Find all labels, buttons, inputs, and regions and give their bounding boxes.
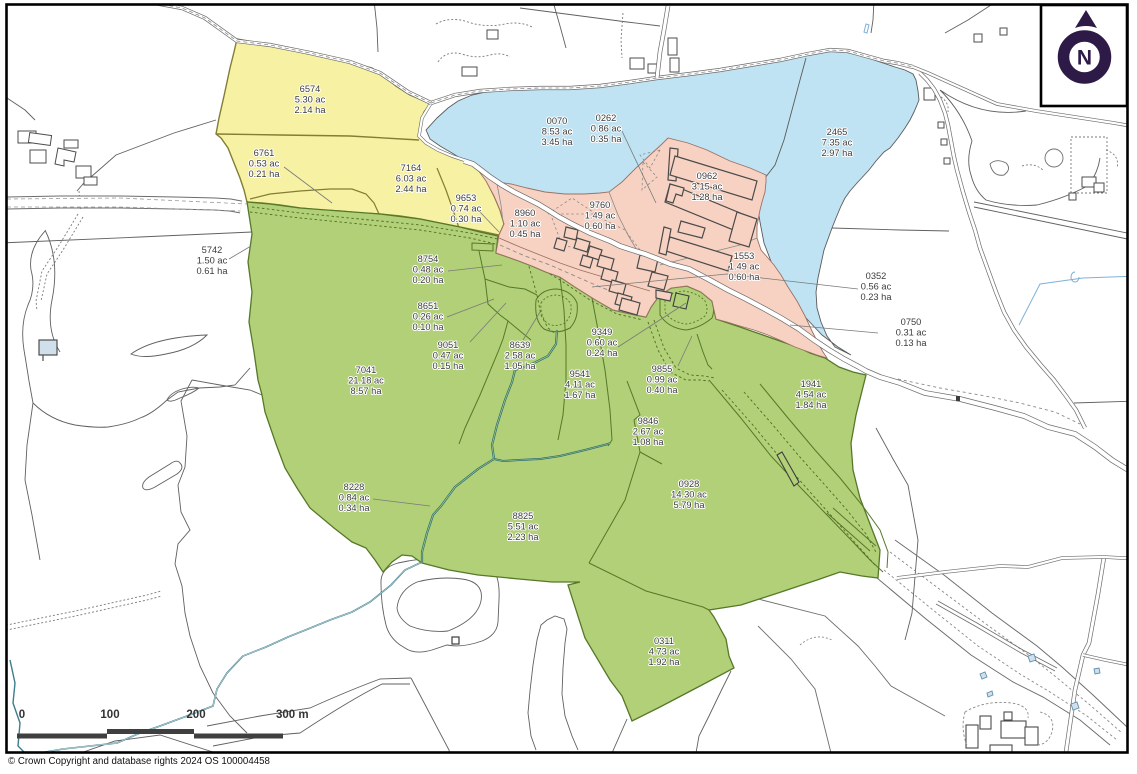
svg-text:0.60 ha: 0.60 ha xyxy=(584,221,616,231)
svg-text:0.84 ac: 0.84 ac xyxy=(339,493,370,503)
svg-text:4.54 ac: 4.54 ac xyxy=(796,390,827,400)
svg-text:4.73 ac: 4.73 ac xyxy=(649,647,680,657)
svg-text:6.03 ac: 6.03 ac xyxy=(396,174,427,184)
svg-text:0.24 ha: 0.24 ha xyxy=(586,348,618,358)
svg-text:8.57 ha: 8.57 ha xyxy=(350,386,382,396)
svg-text:1.92 ha: 1.92 ha xyxy=(648,657,680,667)
svg-text:9846: 9846 xyxy=(638,416,659,426)
svg-text:0928: 0928 xyxy=(679,479,700,489)
svg-text:2.14 ha: 2.14 ha xyxy=(294,105,326,115)
svg-text:0.23 ha: 0.23 ha xyxy=(860,292,892,302)
svg-text:2.97 ha: 2.97 ha xyxy=(821,148,853,158)
svg-text:2465: 2465 xyxy=(827,127,848,137)
svg-text:9349: 9349 xyxy=(592,327,613,337)
svg-text:9051: 9051 xyxy=(438,340,459,350)
svg-text:6574: 6574 xyxy=(300,84,321,94)
svg-text:2.58 ac: 2.58 ac xyxy=(505,351,536,361)
svg-text:200: 200 xyxy=(186,709,205,721)
svg-text:8960: 8960 xyxy=(515,208,536,218)
svg-text:5.30 ac: 5.30 ac xyxy=(295,95,326,105)
svg-text:2.23 ha: 2.23 ha xyxy=(507,532,539,542)
svg-text:0352: 0352 xyxy=(866,271,887,281)
svg-text:21.18 ac: 21.18 ac xyxy=(348,376,384,386)
svg-text:7164: 7164 xyxy=(401,163,422,173)
svg-text:0262: 0262 xyxy=(596,113,617,123)
svg-text:5.79 ha: 5.79 ha xyxy=(673,500,705,510)
svg-text:0.74 ac: 0.74 ac xyxy=(451,204,482,214)
svg-text:0.60 ac: 0.60 ac xyxy=(587,338,618,348)
svg-text:0.48 ac: 0.48 ac xyxy=(413,265,444,275)
svg-text:1.10 ac: 1.10 ac xyxy=(510,219,541,229)
svg-text:8228: 8228 xyxy=(344,482,365,492)
svg-text:0.53 ac: 0.53 ac xyxy=(249,159,280,169)
svg-text:0750: 0750 xyxy=(901,317,922,327)
svg-text:0.99 ac: 0.99 ac xyxy=(647,375,678,385)
svg-text:0.15 ha: 0.15 ha xyxy=(432,361,464,371)
svg-text:0.21 ha: 0.21 ha xyxy=(248,169,280,179)
svg-text:0.60 ha: 0.60 ha xyxy=(728,272,760,282)
svg-text:8639: 8639 xyxy=(510,340,531,350)
svg-text:100: 100 xyxy=(100,709,119,721)
svg-text:9760: 9760 xyxy=(590,200,611,210)
svg-text:8.53 ac: 8.53 ac xyxy=(542,127,573,137)
svg-text:0.31 ac: 0.31 ac xyxy=(896,328,927,338)
svg-text:© Crown Copyright and database: © Crown Copyright and database rights 20… xyxy=(8,756,270,767)
svg-text:1.67 ha: 1.67 ha xyxy=(564,390,596,400)
svg-text:1.49 ac: 1.49 ac xyxy=(729,262,760,272)
svg-text:0.35 ha: 0.35 ha xyxy=(590,134,622,144)
svg-text:1.84 ha: 1.84 ha xyxy=(795,400,827,410)
svg-text:8825: 8825 xyxy=(513,511,534,521)
svg-text:0.26 ac: 0.26 ac xyxy=(413,312,444,322)
svg-text:1941: 1941 xyxy=(801,379,822,389)
svg-text:1.28 ha: 1.28 ha xyxy=(691,192,723,202)
svg-text:5742: 5742 xyxy=(202,245,223,255)
svg-text:9541: 9541 xyxy=(570,369,591,379)
svg-text:0.34 ha: 0.34 ha xyxy=(338,503,370,513)
svg-text:3.15 ac: 3.15 ac xyxy=(692,182,723,192)
svg-text:0.56 ac: 0.56 ac xyxy=(861,282,892,292)
svg-text:4.11 ac: 4.11 ac xyxy=(565,380,595,390)
svg-text:7.35 ac: 7.35 ac xyxy=(822,138,853,148)
svg-text:0.47 ac: 0.47 ac xyxy=(433,351,464,361)
svg-text:1.05 ha: 1.05 ha xyxy=(504,361,536,371)
svg-text:9855: 9855 xyxy=(652,364,673,374)
svg-text:0.30 ha: 0.30 ha xyxy=(450,214,482,224)
svg-text:3.45 ha: 3.45 ha xyxy=(541,137,573,147)
svg-text:2.67 ac: 2.67 ac xyxy=(633,427,664,437)
svg-text:0311: 0311 xyxy=(654,636,674,646)
svg-text:1.49 ac: 1.49 ac xyxy=(585,211,616,221)
svg-text:14.30 ac: 14.30 ac xyxy=(671,490,707,500)
svg-text:1553: 1553 xyxy=(734,251,755,261)
svg-text:0.45 ha: 0.45 ha xyxy=(509,229,541,239)
svg-text:0.10 ha: 0.10 ha xyxy=(412,322,444,332)
svg-text:0: 0 xyxy=(19,709,25,721)
svg-text:0962: 0962 xyxy=(697,171,718,181)
svg-text:2.44 ha: 2.44 ha xyxy=(395,184,427,194)
svg-text:0.61 ha: 0.61 ha xyxy=(196,266,228,276)
svg-text:5.51 ac: 5.51 ac xyxy=(508,522,539,532)
svg-text:N: N xyxy=(1077,47,1092,70)
svg-text:0.20 ha: 0.20 ha xyxy=(412,275,444,285)
svg-text:7041: 7041 xyxy=(356,365,377,375)
svg-text:300 m: 300 m xyxy=(276,709,309,721)
svg-text:0.40 ha: 0.40 ha xyxy=(646,385,678,395)
svg-text:0.13 ha: 0.13 ha xyxy=(895,338,927,348)
svg-text:1.08 ha: 1.08 ha xyxy=(632,437,664,447)
svg-text:6761: 6761 xyxy=(254,148,275,158)
svg-text:8754: 8754 xyxy=(418,254,439,264)
svg-text:8651: 8651 xyxy=(418,301,439,311)
svg-text:0070: 0070 xyxy=(547,116,568,126)
svg-text:0.86 ac: 0.86 ac xyxy=(591,124,622,134)
svg-text:9653: 9653 xyxy=(456,193,477,203)
svg-text:1.50 ac: 1.50 ac xyxy=(197,256,228,266)
